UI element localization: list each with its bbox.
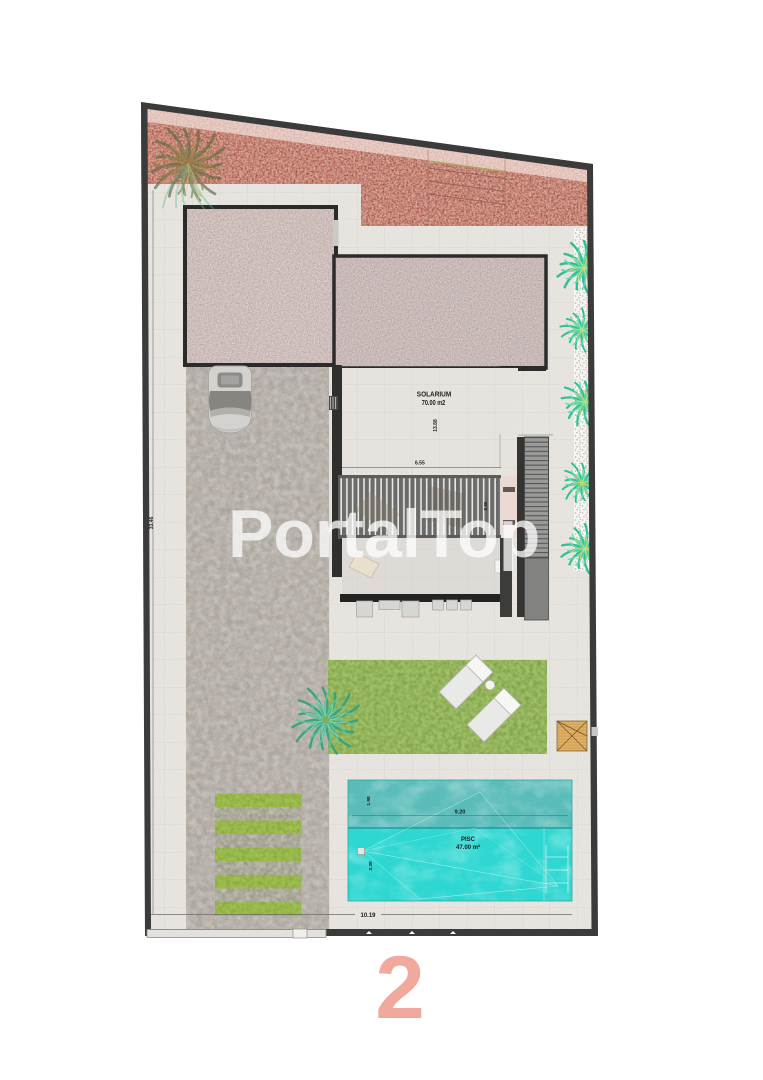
svg-text:47.00 m²: 47.00 m²	[456, 844, 480, 851]
svg-text:10.19: 10.19	[360, 913, 376, 919]
svg-text:2: 2	[375, 937, 425, 1037]
svg-text:9.20: 9.20	[455, 810, 466, 816]
svg-text:PortalTop: PortalTop	[228, 496, 540, 572]
svg-text:3.30: 3.30	[368, 861, 374, 871]
svg-text:SOLARIUM: SOLARIUM	[417, 392, 452, 399]
svg-text:70.00 m2: 70.00 m2	[422, 400, 446, 407]
svg-text:PISC: PISC	[461, 837, 476, 843]
svg-text:33.46: 33.46	[149, 517, 155, 530]
svg-text:6.55: 6.55	[415, 461, 425, 467]
svg-text:13.88: 13.88	[433, 419, 439, 432]
svg-text:1.98: 1.98	[366, 796, 372, 806]
